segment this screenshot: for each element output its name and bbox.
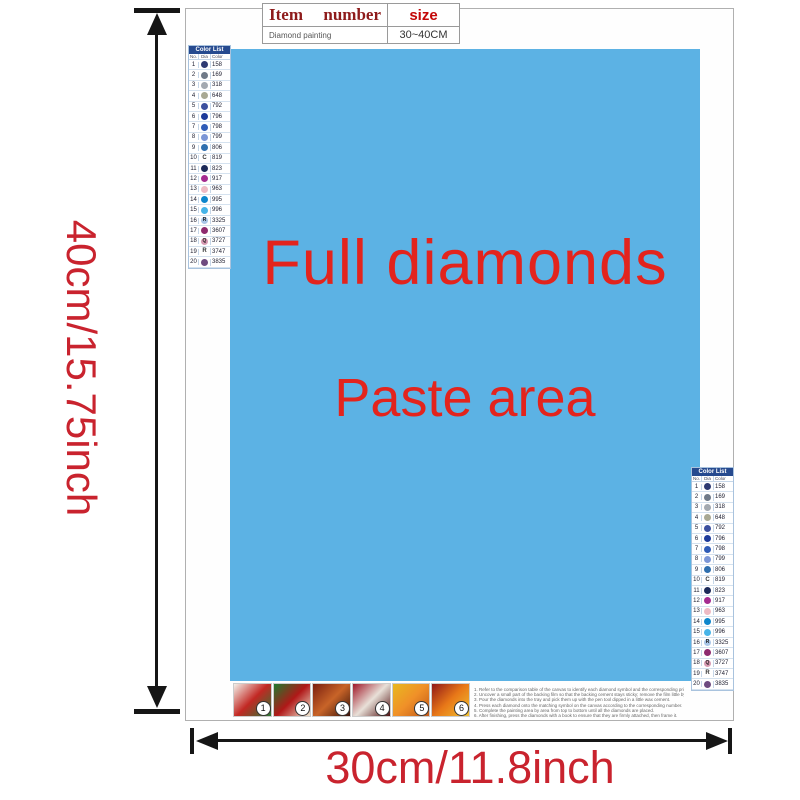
product-name: Diamond painting — [269, 31, 331, 40]
color-no: 16 — [189, 218, 199, 224]
diamond-swatch-icon — [199, 82, 211, 89]
instruction-number: 6. — [474, 713, 478, 718]
color-no: 8 — [692, 556, 702, 562]
color-no: 2 — [189, 72, 199, 78]
color-list-row: 10 C 819 — [692, 576, 733, 586]
color-code: 3727 — [714, 660, 733, 666]
color-list-row: 20 3835 — [692, 679, 733, 689]
color-code: 995 — [714, 619, 733, 625]
diamond-swatch-icon: Q — [199, 238, 211, 245]
color-code: 798 — [714, 546, 733, 552]
color-code: 3325 — [714, 640, 733, 646]
table-data-row: Diamond painting 30~40CM — [263, 26, 459, 43]
arrow-right-icon — [706, 732, 728, 750]
diamond-swatch-icon — [199, 186, 211, 193]
color-list-row: 18 Q 3727 — [692, 659, 733, 669]
color-no: 20 — [189, 259, 199, 265]
color-code: 169 — [211, 72, 230, 78]
diamond-swatch-icon — [199, 134, 211, 141]
step-number-badge: 1 — [256, 701, 271, 716]
color-no: 7 — [189, 124, 199, 130]
color-code: 648 — [714, 515, 733, 521]
color-list-right: Color List No. Dia Color 1 158 2 — [691, 467, 734, 691]
color-code: 819 — [211, 155, 230, 161]
diamond-swatch-icon — [702, 681, 714, 688]
color-code: 169 — [714, 494, 733, 500]
color-list-row: 2 169 — [189, 70, 230, 80]
col-color-label: Color — [211, 54, 230, 59]
color-no: 18 — [692, 660, 702, 666]
color-no: 17 — [189, 228, 199, 234]
color-no: 8 — [189, 134, 199, 140]
color-list-row: 18 Q 3727 — [189, 237, 230, 247]
color-list-row: 12 917 — [189, 174, 230, 184]
instruction-body: After finishing, press the diamonds with… — [479, 713, 678, 718]
item-label: Item — [269, 5, 303, 25]
diamond-swatch-icon — [702, 608, 714, 615]
diamond-swatch-icon — [199, 227, 211, 234]
color-list-row: 15 996 — [692, 627, 733, 637]
color-code: 158 — [211, 62, 230, 68]
color-no: 10 — [692, 577, 702, 583]
diamond-swatch-icon: R — [702, 670, 714, 677]
diamond-swatch-icon — [199, 207, 211, 214]
color-code: 819 — [714, 577, 733, 583]
color-no: 1 — [692, 484, 702, 490]
color-list-row: 9 806 — [692, 565, 733, 575]
diamond-swatch-icon: Q — [702, 660, 714, 667]
step-number-badge: 3 — [335, 701, 350, 716]
step-number-badge: 6 — [454, 701, 469, 716]
color-code: 3747 — [714, 671, 733, 677]
color-list-row: 6 796 — [692, 534, 733, 544]
color-list-row: 9 806 — [189, 143, 230, 153]
step-number-badge: 2 — [295, 701, 310, 716]
color-code: 806 — [714, 567, 733, 573]
color-code: 963 — [211, 186, 230, 192]
step-thumbnail-image: 3 — [312, 683, 351, 717]
diamond-swatch-icon — [702, 483, 714, 490]
diamond-swatch-icon — [702, 566, 714, 573]
color-list-row: 11 823 — [189, 164, 230, 174]
diamond-swatch-icon: C — [702, 577, 714, 584]
paste-area-title: Full diamonds — [230, 227, 700, 299]
diamond-swatch-icon — [702, 587, 714, 594]
diamond-swatch-icon — [702, 556, 714, 563]
diamond-swatch-icon — [199, 72, 211, 79]
diamond-swatch-icon: R — [199, 248, 211, 255]
color-list-row: 2 169 — [692, 492, 733, 502]
color-code: 823 — [211, 166, 230, 172]
color-no: 18 — [189, 238, 199, 244]
color-code: 823 — [714, 588, 733, 594]
color-code: 995 — [211, 197, 230, 203]
diamond-swatch-icon — [702, 597, 714, 604]
color-no: 3 — [189, 82, 199, 88]
color-no: 19 — [189, 249, 199, 255]
col-diamond-label: Dia — [702, 476, 714, 481]
color-code: 799 — [714, 556, 733, 562]
color-list-row: 5 792 — [189, 102, 230, 112]
diamond-swatch-icon — [199, 175, 211, 182]
color-no: 1 — [189, 62, 199, 68]
table-header-row: Item number size — [263, 4, 459, 26]
product-cell: Diamond painting — [263, 31, 387, 40]
color-no: 12 — [189, 176, 199, 182]
color-list-row: 3 318 — [692, 503, 733, 513]
color-code: 963 — [714, 608, 733, 614]
color-list-left-header: Color List — [189, 46, 230, 54]
diamond-swatch-icon — [199, 259, 211, 266]
color-no: 4 — [692, 515, 702, 521]
color-no: 13 — [692, 608, 702, 614]
color-code: 796 — [211, 114, 230, 120]
col-no-label: No. — [692, 476, 702, 481]
diamond-swatch-icon: R — [199, 217, 211, 224]
diamond-swatch-icon — [199, 61, 211, 68]
color-list-left-rows: 1 158 2 169 3 318 — [189, 60, 230, 268]
color-no: 9 — [189, 145, 199, 151]
color-no: 20 — [692, 681, 702, 687]
diamond-swatch-icon — [702, 525, 714, 532]
color-list-row: 17 3607 — [189, 226, 230, 236]
color-code: 917 — [714, 598, 733, 604]
color-no: 6 — [692, 536, 702, 542]
width-dim-right-cap — [728, 728, 732, 754]
paste-area-subtitle: Paste area — [230, 367, 700, 429]
color-list-row: 1 158 — [189, 60, 230, 70]
step-number-badge: 4 — [375, 701, 390, 716]
diamond-swatch-icon — [199, 103, 211, 110]
diamond-swatch-icon — [702, 504, 714, 511]
height-dimension-line — [155, 20, 158, 692]
color-list-row: 6 796 — [189, 112, 230, 122]
color-no: 3 — [692, 504, 702, 510]
diamond-swatch-icon — [702, 649, 714, 656]
color-code: 3607 — [714, 650, 733, 656]
item-size-table: Item number size Diamond painting 30~40C… — [262, 3, 460, 44]
color-no: 10 — [189, 155, 199, 161]
color-code: 3747 — [211, 249, 230, 255]
color-list-row: 5 792 — [692, 524, 733, 534]
color-list-row: 19 R 3747 — [692, 669, 733, 679]
color-list-row: 4 648 — [189, 91, 230, 101]
step-thumbnail-image: 2 — [273, 683, 312, 717]
color-code: 796 — [714, 536, 733, 542]
color-list-row: 16 R 3325 — [692, 638, 733, 648]
color-list-right-rows: 1 158 2 169 3 318 — [692, 482, 733, 690]
diamond-swatch-icon — [702, 546, 714, 553]
color-code: 3835 — [211, 259, 230, 265]
color-code: 3325 — [211, 218, 230, 224]
step-thumbnails: 1 2 3 4 5 6 — [233, 683, 470, 717]
color-code: 917 — [211, 176, 230, 182]
color-code: 318 — [211, 82, 230, 88]
color-no: 19 — [692, 671, 702, 677]
height-dimension-label: 40cm/15.75inch — [59, 203, 105, 533]
diamond-swatch-icon — [199, 165, 211, 172]
color-no: 6 — [189, 114, 199, 120]
color-no: 7 — [692, 546, 702, 552]
color-code: 799 — [211, 134, 230, 140]
step-thumbnail-image: 4 — [352, 683, 391, 717]
color-no: 11 — [692, 588, 702, 594]
width-dimension-label: 30cm/11.8inch — [250, 742, 690, 794]
step-thumbnail-image: 5 — [392, 683, 431, 717]
col-diamond-label: Dia — [199, 54, 211, 59]
instructions-text: 1. Refer to the comparison table of the … — [474, 687, 684, 718]
color-no: 4 — [189, 93, 199, 99]
color-code: 3835 — [714, 681, 733, 687]
diamond-swatch-icon — [199, 92, 211, 99]
color-code: 806 — [211, 145, 230, 151]
width-dim-left-cap — [190, 728, 194, 754]
size-value-cell: 30~40CM — [387, 27, 459, 43]
color-list-row: 12 917 — [692, 596, 733, 606]
color-no: 14 — [189, 197, 199, 203]
color-code: 996 — [211, 207, 230, 213]
color-code: 996 — [714, 629, 733, 635]
col-color-label: Color — [714, 476, 733, 481]
diamond-swatch-icon — [199, 144, 211, 151]
color-code: 3727 — [211, 238, 230, 244]
diamond-swatch-icon: C — [199, 155, 211, 162]
color-no: 17 — [692, 650, 702, 656]
product-diagram: 40cm/15.75inch Item number size Diamond … — [0, 0, 800, 800]
number-label: number — [323, 5, 381, 25]
diamond-swatch-icon — [199, 196, 211, 203]
color-list-row: 7 798 — [692, 544, 733, 554]
color-list-row: 20 3835 — [189, 257, 230, 267]
color-code: 3607 — [211, 228, 230, 234]
color-list-row: 13 963 — [692, 607, 733, 617]
color-list-row: 8 799 — [692, 555, 733, 565]
instruction-line: 6. After finishing, press the diamonds w… — [474, 713, 684, 718]
color-list-row: 7 798 — [189, 122, 230, 132]
diamond-swatch-icon: R — [702, 639, 714, 646]
diamond-swatch-icon — [702, 535, 714, 542]
diamond-swatch-icon — [199, 124, 211, 131]
height-dim-bottom-cap — [134, 709, 180, 714]
diamond-swatch-icon — [702, 514, 714, 521]
color-no: 13 — [189, 186, 199, 192]
color-code: 318 — [714, 504, 733, 510]
color-list-left: Color List No. Dia Color 1 158 2 — [188, 45, 231, 269]
size-header-cell: size — [387, 4, 459, 26]
color-no: 16 — [692, 640, 702, 646]
color-list-row: 16 R 3325 — [189, 216, 230, 226]
color-code: 158 — [714, 484, 733, 490]
color-list-row: 17 3607 — [692, 648, 733, 658]
color-code: 798 — [211, 124, 230, 130]
color-code: 792 — [714, 525, 733, 531]
step-thumbnail-image: 1 — [233, 683, 272, 717]
color-code: 648 — [211, 93, 230, 99]
canvas-sheet: Item number size Diamond painting 30~40C… — [185, 8, 734, 721]
diamond-swatch-icon — [702, 494, 714, 501]
color-no: 5 — [692, 525, 702, 531]
color-list-row: 8 799 — [189, 133, 230, 143]
paste-area: Full diamonds Paste area — [230, 49, 700, 681]
color-list-row: 14 995 — [692, 617, 733, 627]
color-code: 792 — [211, 103, 230, 109]
color-no: 2 — [692, 494, 702, 500]
item-number-header-cell: Item number — [263, 5, 387, 25]
color-list-row: 14 995 — [189, 195, 230, 205]
color-no: 15 — [189, 207, 199, 213]
color-list-row: 13 963 — [189, 185, 230, 195]
color-list-row: 4 648 — [692, 513, 733, 523]
color-list-row: 10 C 819 — [189, 154, 230, 164]
color-list-row: 11 823 — [692, 586, 733, 596]
color-no: 9 — [692, 567, 702, 573]
color-list-row: 19 R 3747 — [189, 247, 230, 257]
step-number-badge: 5 — [414, 701, 429, 716]
col-no-label: No. — [189, 54, 199, 59]
arrow-down-icon — [147, 686, 167, 708]
color-no: 15 — [692, 629, 702, 635]
color-list-row: 1 158 — [692, 482, 733, 492]
color-list-row: 15 996 — [189, 205, 230, 215]
diamond-swatch-icon — [702, 618, 714, 625]
color-no: 11 — [189, 166, 199, 172]
diamond-swatch-icon — [199, 113, 211, 120]
color-no: 14 — [692, 619, 702, 625]
color-no: 12 — [692, 598, 702, 604]
color-list-row: 3 318 — [189, 81, 230, 91]
color-list-right-header: Color List — [692, 468, 733, 476]
step-thumbnail-image: 6 — [431, 683, 470, 717]
color-no: 5 — [189, 103, 199, 109]
diamond-swatch-icon — [702, 629, 714, 636]
